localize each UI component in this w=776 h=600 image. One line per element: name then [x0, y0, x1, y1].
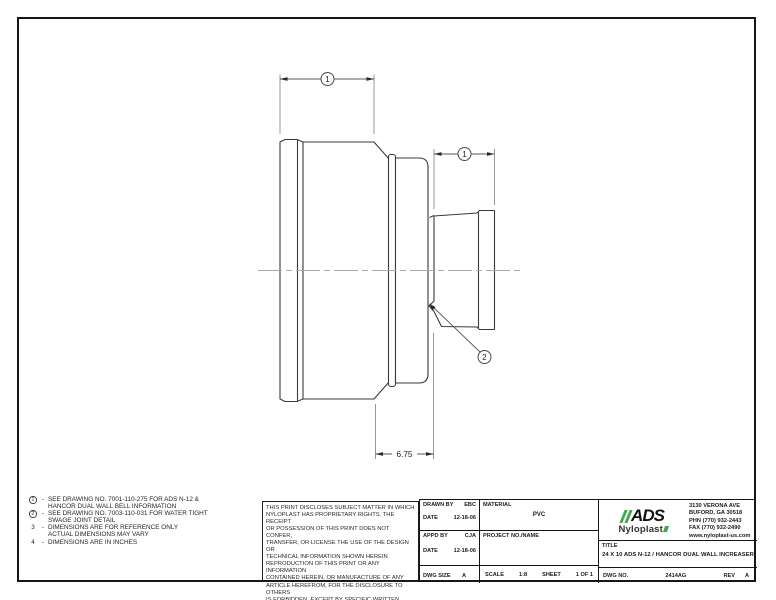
balloon-bell-label: 1	[325, 75, 330, 84]
dwg-no-value: 2414AG	[628, 573, 723, 579]
project-label: PROJECT NO./NAME	[483, 533, 539, 539]
company-address: 3130 VERONA AVE BUFORD, GA 30518 PHN (77…	[687, 500, 757, 540]
nyloplast-logo-text: Nyloplast	[599, 524, 687, 535]
dwg-no-label: DWG NO.	[603, 573, 628, 579]
balloon-swage-label: 2	[482, 353, 487, 362]
notes-list: 1 - SEE DRAWING NO. 7001-110-275 FOR ADS…	[28, 496, 260, 546]
drawn-date-value: 12-18-06	[454, 515, 476, 521]
project-cell: PROJECT NO./NAME	[480, 531, 599, 566]
material-label: MATERIAL	[483, 502, 511, 508]
note-3-line2: ACTUAL DIMENSIONS MAY VARY	[48, 531, 260, 538]
drawn-by-label: DRAWN BY	[423, 502, 453, 508]
material-cell: MATERIAL PVC	[480, 500, 599, 531]
rev-label: REV	[723, 573, 735, 579]
dwg-size-cell: DWG SIZE A	[420, 566, 480, 583]
title-label: TITLE	[602, 543, 618, 549]
balloon-pipe-label: 1	[462, 150, 467, 159]
ads-logo-text: ADS	[631, 509, 664, 523]
scale-value: 1:8	[519, 572, 527, 578]
drawn-by-value: EBC	[464, 502, 476, 508]
material-value: PVC	[480, 512, 598, 518]
note-4-marker: 4	[28, 539, 38, 546]
title-block: DRAWN BY EBC DATE 12-18-06 MATERIAL PVC …	[419, 499, 756, 582]
note-4: 4 - DIMENSIONS ARE IN INCHES	[28, 539, 260, 546]
note-2-line2: SWAGE JOINT DETAIL	[48, 517, 260, 524]
rev-value: A	[745, 573, 749, 579]
appd-date-label: DATE	[423, 548, 438, 554]
nyloplast-mark-icon	[663, 526, 668, 532]
proprietary-notice: THIS PRINT DISCLOSES SUBJECT MATTER IN W…	[262, 501, 419, 582]
sheet-value: 1 OF 1	[576, 572, 593, 578]
ads-nyloplast-logo: ADS Nyloplast	[599, 500, 687, 540]
title-cell: TITLE 24 X 10 ADS N-12 / HANCOR DUAL WAL…	[599, 541, 757, 568]
appd-by-label: APPD BY	[423, 533, 448, 539]
dwg-no-cell: DWG NO. 2414AG REV A	[599, 568, 757, 583]
note-1: 1 - SEE DRAWING NO. 7001-110-275 FOR ADS…	[28, 496, 260, 510]
note-2: 2 - SEE DRAWING NO. 7003-110-031 FOR WAT…	[28, 510, 260, 524]
note-3-marker: 3	[28, 524, 38, 538]
drawn-by-cell: DRAWN BY EBC DATE 12-18-06	[420, 500, 480, 531]
note-2-marker: 2	[28, 510, 38, 524]
scale-label: SCALE	[485, 572, 504, 578]
note-4-line1: DIMENSIONS ARE IN INCHES	[48, 539, 260, 546]
note-3-line1: DIMENSIONS ARE FOR REFERENCE ONLY	[48, 524, 260, 531]
appd-date-value: 12-18-06	[454, 548, 476, 554]
drawing-title: 24 X 10 ADS N-12 / HANCOR DUAL WALL INCR…	[599, 552, 757, 558]
note-1-line1: SEE DRAWING NO. 7001-110-275 FOR ADS N-1…	[48, 496, 260, 503]
dwg-size-label: DWG SIZE	[423, 573, 451, 579]
note-1-line2: HANCOR DUAL WALL BELL INFORMATION	[48, 503, 260, 510]
appd-by-value: CJA	[465, 533, 476, 539]
note-3: 3 - DIMENSIONS ARE FOR REFERENCE ONLY AC…	[28, 524, 260, 538]
length-dim-label: 6.75	[397, 450, 413, 459]
scale-sheet-cell: SCALE 1:8 SHEET 1 OF 1	[480, 566, 599, 583]
note-1-marker: 1	[28, 496, 38, 510]
dwg-size-value: A	[462, 573, 466, 579]
appd-by-cell: APPD BY CJA DATE 12-18-06	[420, 531, 480, 566]
sheet-label: SHEET	[542, 572, 561, 578]
drawn-date-label: DATE	[423, 515, 438, 521]
small-pipe-outline	[429, 211, 495, 330]
company-cell: ADS Nyloplast 3130 VERONA AVE BUFORD, GA…	[599, 500, 757, 541]
note-2-line1: SEE DRAWING NO. 7003-110-031 FOR WATER T…	[48, 510, 260, 517]
company-website: www.nyloplast-us.com	[689, 533, 755, 540]
drawing-sheet: 1 1 2 6.75 1 - SEE DRAWING NO. 7001-110-…	[0, 0, 776, 600]
